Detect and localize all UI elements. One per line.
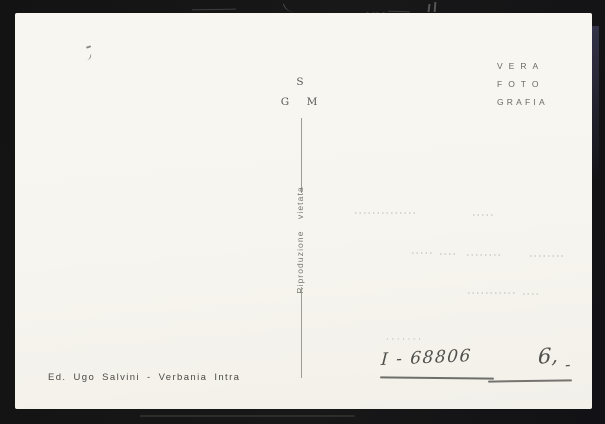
pencil-speck <box>87 54 91 60</box>
scratch-mark <box>140 415 355 417</box>
ghost-mark <box>467 254 503 256</box>
divider-line-top <box>301 118 302 193</box>
handwritten-price-dash: - <box>564 355 571 374</box>
handwritten-catalog-number: I - 68806 <box>380 346 472 370</box>
monogram-letter-m: M <box>305 96 319 108</box>
pencil-speck <box>86 45 91 48</box>
photographer-mark-line2: FOTO <box>497 79 548 97</box>
handwritten-dots: ······· <box>386 335 424 345</box>
monogram-letter-g: G <box>278 96 292 108</box>
ghost-mark <box>355 212 417 214</box>
ghost-mark <box>530 255 563 257</box>
postcard-back: S G M Riproduzione vietata VERA FOTO GRA… <box>15 13 592 409</box>
photographer-mark: VERA FOTO GRAFIA <box>497 61 548 115</box>
pencil-underline <box>488 379 572 382</box>
publisher-credit: Ed. Ugo Salvini - Verbania Intra <box>48 372 240 383</box>
scratch-mark <box>434 2 436 12</box>
ghost-mark <box>440 253 455 255</box>
photographer-mark-line3: GRAFIA <box>497 97 548 115</box>
scan-edge-sheen <box>591 26 599 181</box>
reproduction-notice: Riproduzione vietata <box>295 186 305 294</box>
postcard-scan: S G M Riproduzione vietata VERA FOTO GRA… <box>0 0 605 424</box>
scratch-mark <box>428 4 430 12</box>
ghost-mark <box>468 292 516 294</box>
scratch-mark <box>192 9 236 11</box>
ghost-mark <box>412 252 434 254</box>
pencil-underline <box>380 376 494 379</box>
photographer-mark-line1: VERA <box>497 61 548 79</box>
monogram-letter-s: S <box>293 76 307 88</box>
handwritten-price: 6, <box>538 343 558 368</box>
ghost-mark <box>523 293 539 295</box>
ghost-mark <box>473 214 493 216</box>
divider-line-bottom <box>301 287 302 378</box>
